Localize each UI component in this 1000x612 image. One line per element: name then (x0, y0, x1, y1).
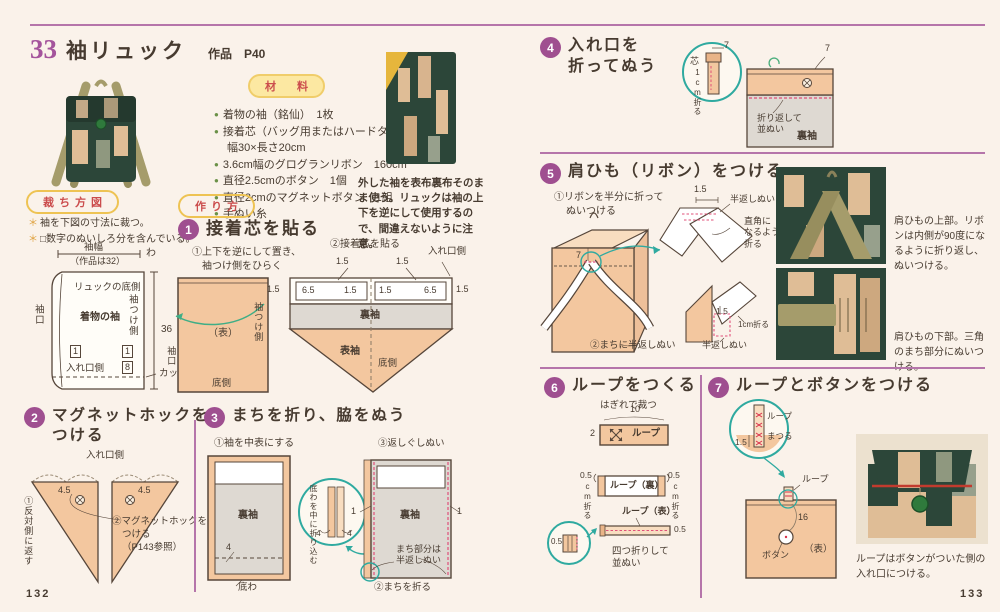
front-label: （表） (804, 544, 833, 556)
step-3-annotation-2: ②まちを折る (374, 582, 431, 595)
step-3-title: まちを折り、脇をぬう (232, 406, 406, 426)
fold-stitch-note: 折り返して 並ぬい (757, 113, 802, 136)
loop-label: ループ (767, 411, 792, 422)
dim-1-5: 1.5 (344, 285, 357, 296)
half-backstitch-label: 半返しぬい (702, 340, 747, 351)
interfacing-label: 芯 (690, 56, 699, 67)
step-7-bag-diagram: ループ 16 ボタン （表） (742, 484, 842, 580)
seam-allowance-8: 8 (122, 361, 133, 374)
section-divider (540, 152, 985, 154)
step-7-inset-art (729, 399, 789, 459)
magnet-snap-icon (126, 496, 135, 505)
attach-side-label: 袖つけ側 (252, 302, 263, 342)
step-2-annotation-line: ②マグネットホックを (112, 516, 207, 529)
step-1-diagram-a: （表） 袖つけ側 袖口 底側 (168, 272, 278, 398)
step-4-title: 折ってぬう (568, 57, 657, 78)
step-4-title: 入れ口を (568, 36, 657, 57)
step-3-diagram-b: ③返しぐしぬい 1 1 裏袖 まち部分は 半返しぬい ②まちを折る (358, 452, 463, 592)
dim-2: 2 (590, 428, 595, 439)
step-7-inset-circle: ループ まつる 1.5 (729, 399, 789, 459)
fold-stitch-note-line: 並ぬい (757, 124, 802, 135)
step-6-header: 6 ループをつくる (544, 376, 697, 398)
dim-1: 1 (351, 506, 356, 517)
cutting-heading: 裁ち方図 (26, 190, 119, 214)
seam-allowance-1: 1 (122, 345, 133, 358)
step-6-strip-front: ループ（表） 0.5 (596, 518, 688, 544)
fold-stitch-note-line: 折り返して (757, 113, 802, 124)
teal-arrow-icon (756, 456, 792, 484)
step-5-annotation-2: ②まちに半返しぬい (590, 340, 676, 353)
step-5-ribbon-detail: 1.5 半返しぬい 直角に なるように 折る (660, 192, 770, 272)
button-label: ボタン (762, 550, 789, 561)
dim-1-5: 1.5 (716, 306, 728, 317)
quarter-fold-note-line: 並ぬい (612, 558, 669, 570)
opening-side-label: 入れ口側 (428, 246, 466, 258)
step-5-corner-detail: 1.5 1cm折る 半返しぬい (680, 282, 765, 352)
step-2-number: 2 (24, 407, 45, 428)
page-header: 33 袖リュック 作品 P40 (30, 34, 265, 65)
back-sleeve-label: 裏袖 (360, 310, 380, 323)
step-1-annotation-2: ②接着芯を貼る (330, 238, 400, 252)
step-5-bag-art (534, 204, 666, 356)
step-5-bag-diagram: 7 (534, 204, 666, 356)
loop-back-label: ループ（裏） (610, 480, 663, 491)
step-7-number: 7 (708, 377, 729, 398)
step-2-diagram: 入れ口側 4.5 4.5 ①反対側に返す ②マグネットホックを つける （P14… (20, 462, 190, 592)
fold-1cm-label: 1cm折る (692, 68, 702, 116)
attach-side-label: 袖つけ側 (126, 294, 138, 336)
dim-4-5: 4.5 (138, 485, 151, 496)
dim-0-5: 0.5 (674, 524, 686, 535)
half-backstitch-label: 半返しぬい (730, 194, 775, 205)
step-4-number: 4 (540, 37, 561, 58)
work-page-ref: 作品 P40 (208, 45, 265, 62)
front-label: （表） (208, 328, 238, 341)
step-1-title: 接着芯を貼る (206, 218, 320, 240)
strap-bottom-photo-art (776, 268, 886, 360)
front-sleeve-label: 表袖 (340, 346, 360, 359)
sleeve-opening-label: 袖口 (165, 346, 176, 366)
step-2-title: マグネットホックを (52, 406, 210, 426)
step-3-header: 3 まちを折り、脇をぬう (204, 406, 406, 428)
gusset-note-line: まち部分は (396, 544, 441, 555)
materials-heading: 材 料 (248, 74, 325, 98)
step-2-title: つける (52, 426, 210, 446)
page-title: 袖リュック (66, 35, 186, 65)
quarter-fold-note: 四つ折りして 並ぬい (612, 546, 669, 570)
backpack-photo (26, 70, 178, 188)
step-5-header: 5 肩ひも（リボン）をつける (540, 162, 784, 184)
step-6-number: 6 (544, 377, 565, 398)
dim-4: 4 (226, 542, 231, 553)
dim-4-5: 4.5 (58, 485, 71, 496)
teal-arrow-icon (585, 524, 601, 540)
step-4-diagram-art (745, 55, 837, 150)
opening-side-label: 入れ口側 (86, 450, 124, 462)
dim-1: 1 (457, 506, 462, 517)
fold-1cm-label: 1cm折る (738, 320, 769, 330)
loop-button-photo (856, 434, 988, 544)
back-sleeve-label: 裏袖 (238, 510, 258, 523)
step-6-strip-cut: 10 2 ループ (588, 414, 678, 448)
dim-0-5: 0.5 (580, 470, 592, 481)
step-2-annotation-line: （P143参照） (112, 542, 207, 555)
step-6-cut-note: はぎれで裁つ (600, 400, 657, 413)
bottom-side-label: リュックの底側 (74, 282, 141, 294)
book-spread: 33 袖リュック 作品 P40 材 料 着物の袖（銘仙） 1枚 接着芯（バッグ用… (0, 0, 1000, 612)
loop-label: ループ (802, 474, 828, 485)
step-6-title: ループをつくる (572, 376, 697, 397)
dim-10: 10 (630, 404, 640, 415)
dim-1-5: 1.5 (694, 184, 707, 195)
loop-button-photo-art (856, 434, 988, 544)
dim-7: 7 (825, 43, 830, 54)
strap-top-photo-art (776, 167, 886, 264)
top-rule (30, 24, 985, 26)
gusset-note: まち部分は 半返しぬい (396, 544, 441, 567)
opening-side-label: 入れ口側 (66, 363, 104, 375)
step-3-annotation-1: ①袖を中表にする (214, 437, 294, 451)
step-4-diagram: 7 折り返して 並ぬい 裏袖 (745, 55, 837, 150)
step-1-diagram-b: ②接着芯を貼る 入れ口側 1.5 1.5 1.5 1.5 6.5 1.5 1.5… (278, 268, 468, 398)
step-2-annotation-2: ②マグネットホックを つける （P143参照） (112, 516, 207, 554)
step-4-header: 4 入れ口を 折ってぬう (540, 36, 657, 78)
bottom-fold-label: 底わ (238, 582, 257, 594)
step-3-annotation-3: ③返しぐしぬい (378, 438, 445, 451)
loop-front-label: ループ（表） (622, 506, 675, 517)
cutting-notes: 袖を下図の寸法に裁つ。 □数字のぬいしろ分を含んでいる。 (28, 216, 196, 248)
strap-bottom-photo (776, 268, 886, 360)
dim-7: 7 (724, 40, 729, 51)
back-sleeve-label: 裏袖 (400, 510, 420, 523)
slipstitch-label: まつる (767, 431, 793, 442)
cutting-note: 袖を下図の寸法に裁つ。 (28, 216, 196, 232)
right-page-number: 133 (960, 588, 984, 600)
dim-1-5: 1.5 (336, 256, 349, 267)
howto-heading: 作り方 (178, 194, 255, 218)
backpack-art (26, 70, 178, 188)
step-3-diagram-a: 裏袖 4 底わ (202, 452, 297, 592)
seam-allowance-1: 1 (70, 345, 81, 358)
step-5-number: 5 (540, 163, 561, 184)
step-2-annotation-1: ①反対側に返す (22, 496, 33, 566)
bottom-side-label: 底側 (378, 358, 397, 370)
kimono-sleeve-label: 着物の袖 (80, 312, 120, 325)
dim-0-5: 0.5 (668, 470, 680, 481)
step-4-inset-circle: 芯 7 1cm折る (682, 42, 742, 102)
step-5-annotation-line: ①リボンを半分に折って (554, 191, 664, 205)
step-1-annotation-line: ①上下を逆にして置き、 (192, 246, 301, 260)
step-6-strip-back: 0.5 cm折る 0.5 cm折る ループ（裏） (580, 470, 680, 510)
back-sleeve-label: 裏袖 (797, 131, 817, 144)
dim-1-5: 1.5 (456, 284, 469, 295)
step-5-title: 肩ひも（リボン）をつける (568, 162, 784, 183)
dim-sleeve-width: 袖幅 (84, 242, 103, 254)
dim-1-5: 1.5 (267, 284, 280, 295)
step-7-header: 7 ループとボタンをつける (708, 376, 933, 398)
inset-note: 底わを中に折り込む (308, 484, 318, 565)
bottom-label: 底側 (212, 378, 231, 390)
step-1-header: 1 接着芯を貼る (178, 218, 320, 240)
step-2-header: 2 マグネットホックを つける (24, 406, 210, 446)
dim-0-5: 0.5 (551, 537, 562, 547)
dim-sleeve-width-note: （作品は32） (70, 256, 125, 267)
section-divider (540, 367, 985, 369)
loop-button-caption: ループはボタンがついた側の入れ口につける。 (856, 552, 994, 582)
sleeve-photo (384, 50, 460, 168)
lesson-number: 33 (30, 34, 57, 65)
dim-7: 7 (576, 250, 581, 261)
dim-16: 16 (798, 512, 808, 523)
fold-arrow-icon (769, 58, 779, 67)
dim-1-5: 1.5 (379, 285, 392, 296)
magnet-snap-icon (803, 79, 812, 88)
cm-fold-label: cm折る (582, 482, 592, 520)
step-1-number: 1 (178, 219, 199, 240)
step-7-bag-art (742, 484, 842, 580)
section-divider (194, 420, 196, 592)
step-3-number: 3 (204, 407, 225, 428)
gusset-note-line: 半返しぬい (396, 555, 441, 566)
section-divider (700, 375, 702, 598)
left-page-number: 132 (26, 588, 50, 600)
fold-label: わ (146, 248, 156, 261)
dim-6-5: 6.5 (302, 285, 315, 296)
dim-1-5: 1.5 (396, 256, 409, 267)
dim-4: 4 (347, 528, 352, 539)
loop-label: ループ (632, 428, 660, 440)
quarter-fold-note-line: 四つ折りして (612, 546, 669, 558)
step-2-annotation-line: つける (112, 529, 207, 542)
dim-6-5: 6.5 (424, 285, 437, 296)
sleeve-opening-label: 袖口 (32, 304, 44, 325)
dim-4: 4 (316, 528, 321, 539)
dim-1-5: 1.5 (735, 437, 747, 448)
step-7-title: ループとボタンをつける (736, 376, 933, 397)
strap-top-caption: 肩ひもの上部。リボンは内側が90度になるように折り返し、ぬいつける。 (894, 214, 990, 274)
sleeve-art (384, 50, 460, 168)
magnet-snap-icon (76, 496, 85, 505)
strap-top-photo (776, 167, 886, 264)
